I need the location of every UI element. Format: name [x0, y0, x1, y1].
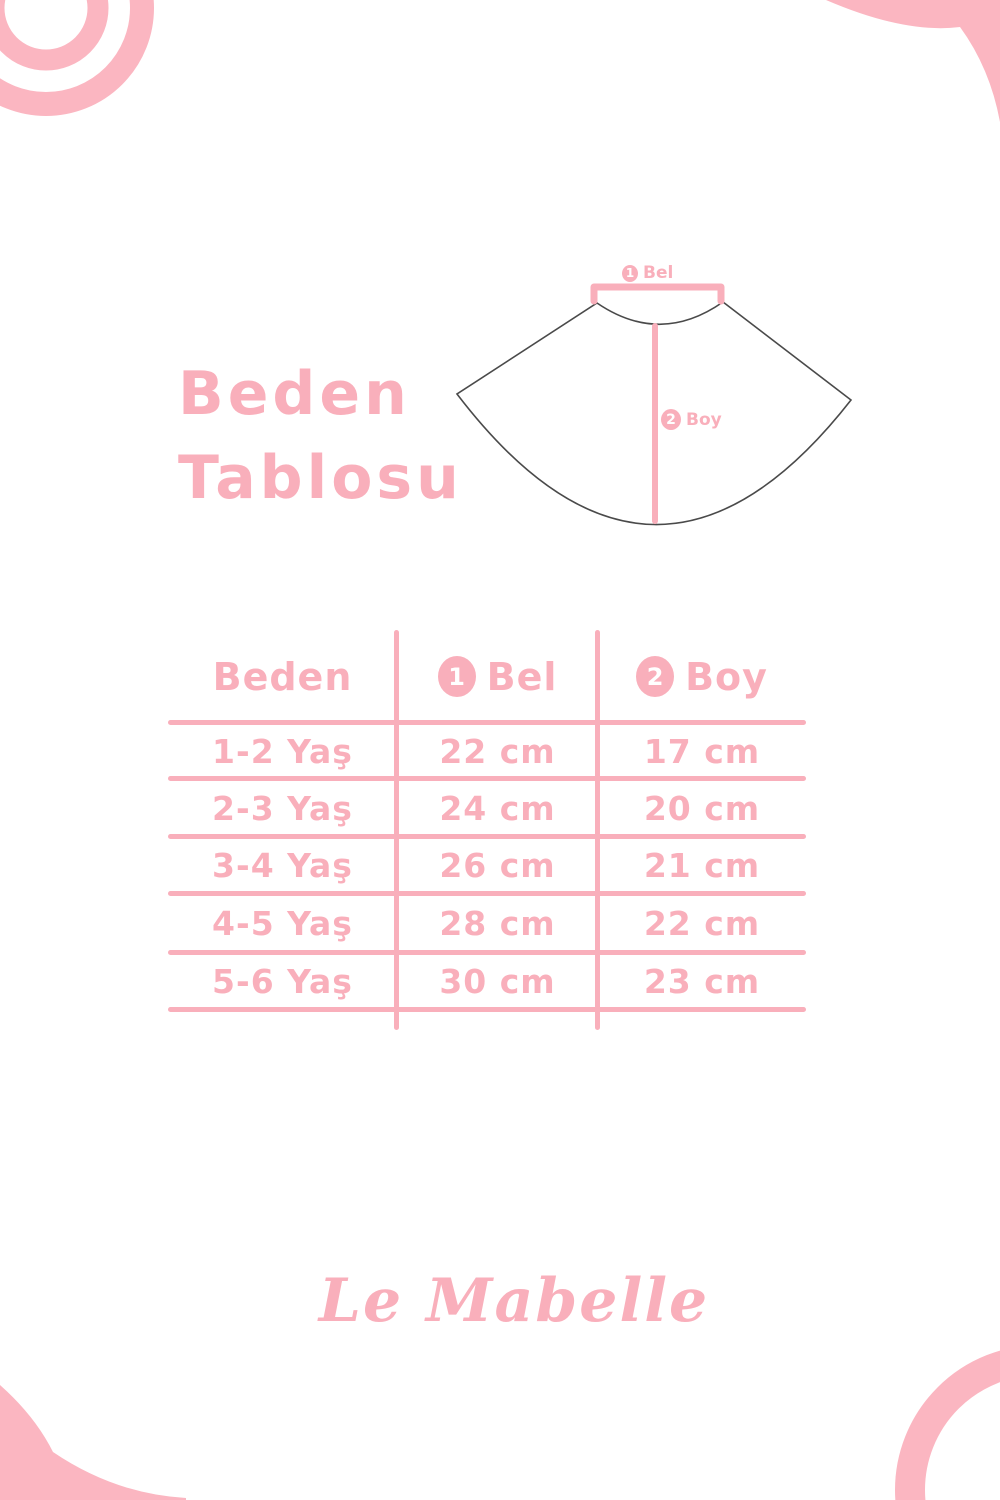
diagram-bel-label: 1 Bel — [622, 263, 673, 283]
size-chart-poster: Beden Tablosu 1 Bel 2 Boy Beden 1 Bel 2 … — [0, 0, 1000, 1500]
size-cell: 2-3 Yaş — [168, 779, 397, 837]
size-cell: 5-6 Yaş — [168, 953, 397, 1010]
column-header-bel: 1 Bel — [397, 630, 598, 723]
waist-measure-bracket — [594, 287, 721, 301]
page-title-line1: Beden — [178, 352, 463, 436]
column-header-size: Beden — [168, 630, 397, 723]
bel-header-badge: 1 — [438, 656, 476, 697]
size-cell: 4-5 Yaş — [168, 894, 397, 953]
bel-cell: 24 cm — [397, 779, 598, 837]
boy-cell: 20 cm — [598, 779, 806, 837]
corner-decoration-bottom-left — [0, 1385, 186, 1500]
size-table: Beden 1 Bel 2 Boy 1-2 Yaş 22 cm 17 cm 2-… — [168, 630, 806, 1010]
boy-number-badge: 2 — [661, 409, 681, 430]
bel-number-badge: 1 — [622, 265, 638, 282]
column-header-boy: 2 Boy — [598, 630, 806, 723]
bel-cell: 22 cm — [397, 723, 598, 779]
page-title-line2: Tablosu — [178, 436, 463, 520]
size-cell: 1-2 Yaş — [168, 723, 397, 779]
diagram-boy-label: 2 Boy — [661, 409, 722, 430]
bel-cell: 30 cm — [397, 953, 598, 1010]
boy-header-label: Boy — [685, 655, 768, 699]
bel-cell: 26 cm — [397, 837, 598, 894]
brand-logo: Le Mabelle — [14, 1266, 1000, 1336]
boy-header-badge: 2 — [636, 656, 674, 697]
boy-cell: 23 cm — [598, 953, 806, 1010]
boy-cell: 17 cm — [598, 723, 806, 779]
size-cell: 3-4 Yaş — [168, 837, 397, 894]
bel-header-label: Bel — [487, 655, 558, 699]
boy-cell: 21 cm — [598, 837, 806, 894]
bel-label-text: Bel — [643, 263, 673, 283]
bel-cell: 28 cm — [397, 894, 598, 953]
skirt-shape — [457, 302, 851, 525]
corner-decoration-top-right — [826, 0, 1000, 122]
page-title: Beden Tablosu — [178, 352, 463, 520]
boy-cell: 22 cm — [598, 894, 806, 953]
corner-decoration-bottom-right — [910, 1360, 1000, 1500]
boy-label-text: Boy — [686, 410, 722, 430]
corner-decoration-top-left — [0, 0, 142, 104]
